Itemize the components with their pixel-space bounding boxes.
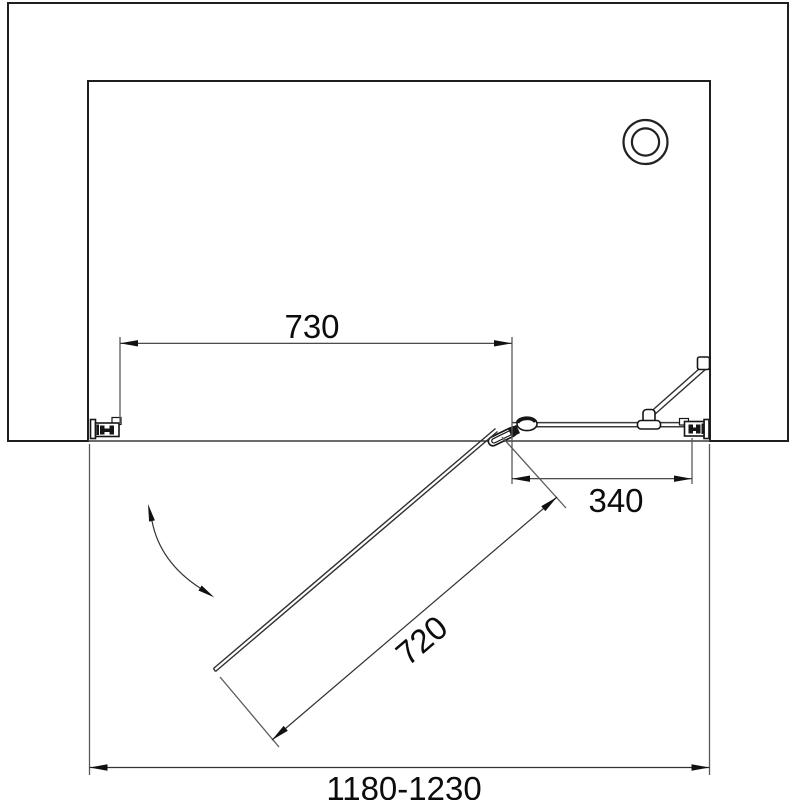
door-swing-arrow bbox=[148, 504, 214, 597]
door-glass-edge-b bbox=[216, 432, 498, 672]
swing-arrow-head-down bbox=[198, 586, 214, 598]
drain-inner-ring bbox=[632, 128, 659, 155]
technical-drawing-page: 730 340 720 1180-1230 bbox=[0, 0, 800, 800]
dim-arrow-340-right bbox=[674, 476, 692, 482]
shower-enclosure-diagram: 730 340 720 1180-1230 bbox=[0, 0, 800, 800]
ext-line-door-bottom bbox=[220, 677, 279, 747]
dimension-door-panel: 720 bbox=[220, 437, 566, 747]
swing-arc bbox=[152, 521, 200, 588]
door-glass-panel bbox=[214, 429, 498, 672]
wall-hatch bbox=[8, 3, 788, 441]
door-glass-edge-a bbox=[214, 429, 496, 669]
right-profile-seal bbox=[702, 424, 705, 435]
dim-arrow-720-bottom bbox=[272, 726, 288, 740]
fixed-glass-panel bbox=[512, 423, 688, 427]
support-bar-glass-clamp bbox=[638, 421, 661, 430]
support-bar-wall-mount bbox=[698, 357, 710, 370]
support-bar-edge-a bbox=[651, 365, 704, 412]
right-profile-bridge bbox=[691, 428, 698, 432]
right-wall-profile bbox=[680, 419, 710, 439]
dim-label-730: 730 bbox=[284, 308, 339, 345]
dim-arrow-340-left bbox=[512, 476, 530, 482]
swing-arrow-head-up bbox=[148, 504, 155, 522]
left-wall-profile bbox=[91, 418, 122, 439]
door-glass-end-cap bbox=[214, 669, 216, 672]
drain-outer-ring bbox=[624, 120, 668, 164]
hinge-knob bbox=[517, 417, 537, 430]
dim-label-340: 340 bbox=[588, 482, 643, 519]
left-profile-bridge bbox=[103, 429, 111, 433]
dim-arrow-730-left bbox=[120, 340, 138, 346]
dim-arrow-730-right bbox=[494, 340, 512, 346]
dim-arrow-overall-left bbox=[90, 764, 108, 770]
dim-line-720 bbox=[272, 497, 557, 740]
dim-label-overall: 1180-1230 bbox=[326, 770, 481, 800]
dim-arrow-720-top bbox=[541, 497, 557, 511]
dim-label-720: 720 bbox=[389, 608, 455, 672]
support-bar-edge-b bbox=[654, 369, 707, 416]
left-profile-seal bbox=[97, 425, 100, 436]
drain-icon bbox=[624, 120, 668, 164]
support-bar bbox=[638, 357, 710, 429]
dimension-door-opening: 730 bbox=[120, 308, 512, 484]
dim-arrow-overall-right bbox=[692, 764, 710, 770]
